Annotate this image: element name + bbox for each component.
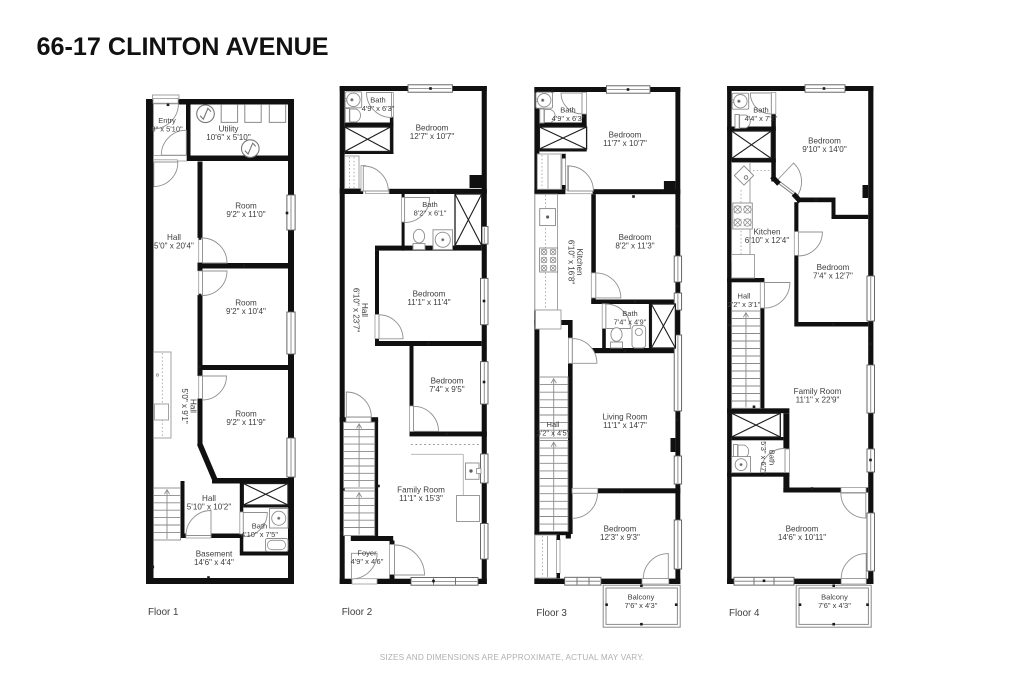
svg-text:14'6" x 4'4": 14'6" x 4'4" xyxy=(194,558,234,567)
svg-text:11'1" x 14'7": 11'1" x 14'7" xyxy=(603,421,647,430)
svg-text:SIZES AND DIMENSIONS ARE APPRO: SIZES AND DIMENSIONS ARE APPROXIMATE, AC… xyxy=(380,653,644,662)
svg-text:7'4" x 12'7": 7'4" x 12'7" xyxy=(813,272,853,281)
svg-text:3'2" x 4'5": 3'2" x 4'5" xyxy=(537,429,570,438)
svg-text:66-17 CLINTON AVENUE: 66-17 CLINTON AVENUE xyxy=(37,33,329,61)
svg-text:11'1" x 22'9": 11'1" x 22'9" xyxy=(796,396,840,405)
svg-text:7'6" x 4'3": 7'6" x 4'3" xyxy=(625,601,658,610)
svg-text:4'9" x 6'3": 4'9" x 6'3" xyxy=(552,114,585,123)
svg-text:5'0" x 20'4": 5'0" x 20'4" xyxy=(154,242,194,251)
svg-text:Floor 4: Floor 4 xyxy=(729,608,760,619)
svg-text:12'7" x 10'7": 12'7" x 10'7" xyxy=(410,132,455,141)
svg-text:8'2" x 6'1": 8'2" x 6'1" xyxy=(414,209,447,218)
svg-text:10'6" x 5'10": 10'6" x 5'10" xyxy=(206,133,251,142)
svg-text:4'4" x 7'2": 4'4" x 7'2" xyxy=(745,114,778,123)
svg-text:6'10" x 23'7": 6'10" x 23'7" xyxy=(351,288,360,333)
svg-text:14'6" x 10'11": 14'6" x 10'11" xyxy=(778,533,826,542)
svg-text:8" x 5'10": 8" x 5'10" xyxy=(151,125,183,134)
svg-text:7'4" x 9'5": 7'4" x 9'5" xyxy=(429,385,465,394)
svg-text:4'9" x 4'6": 4'9" x 4'6" xyxy=(351,557,384,566)
svg-text:6'10" x 12'4": 6'10" x 12'4" xyxy=(745,236,790,245)
svg-text:11'1" x 15'3": 11'1" x 15'3" xyxy=(399,494,443,503)
svg-text:5'0" x 9'1": 5'0" x 9'1" xyxy=(180,388,189,424)
svg-text:4'9" x 6'3": 4'9" x 6'3" xyxy=(362,104,395,113)
svg-text:Floor 3: Floor 3 xyxy=(536,608,567,619)
svg-text:4'10" x 7'5": 4'10" x 7'5" xyxy=(241,530,278,539)
svg-text:9'10" x 14'0": 9'10" x 14'0" xyxy=(802,145,847,154)
svg-text:Floor 1: Floor 1 xyxy=(148,607,179,618)
svg-text:11'7" x 10'7": 11'7" x 10'7" xyxy=(603,139,647,148)
svg-text:9'2" x 11'0": 9'2" x 11'0" xyxy=(226,210,265,219)
svg-text:Floor 2: Floor 2 xyxy=(342,607,373,618)
svg-text:9'2" x 11'9": 9'2" x 11'9" xyxy=(226,418,265,427)
svg-text:7'4" x 4'9": 7'4" x 4'9" xyxy=(614,318,647,327)
svg-text:6'10" x 16'8": 6'10" x 16'8" xyxy=(566,240,575,285)
svg-text:7'6" x 4'3": 7'6" x 4'3" xyxy=(818,601,851,610)
svg-text:8'2" x 11'3": 8'2" x 11'3" xyxy=(615,242,654,251)
svg-text:9'2" x 10'4": 9'2" x 10'4" xyxy=(226,307,266,316)
svg-text:12'3" x 9'3": 12'3" x 9'3" xyxy=(600,533,640,542)
svg-text:2'2" x 3'1": 2'2" x 3'1" xyxy=(728,300,761,309)
svg-text:5'10" x 10'2": 5'10" x 10'2" xyxy=(187,503,232,512)
svg-text:11'1" x 11'4": 11'1" x 11'4" xyxy=(407,298,450,307)
svg-text:5'3" x 6'7": 5'3" x 6'7" xyxy=(759,441,768,474)
